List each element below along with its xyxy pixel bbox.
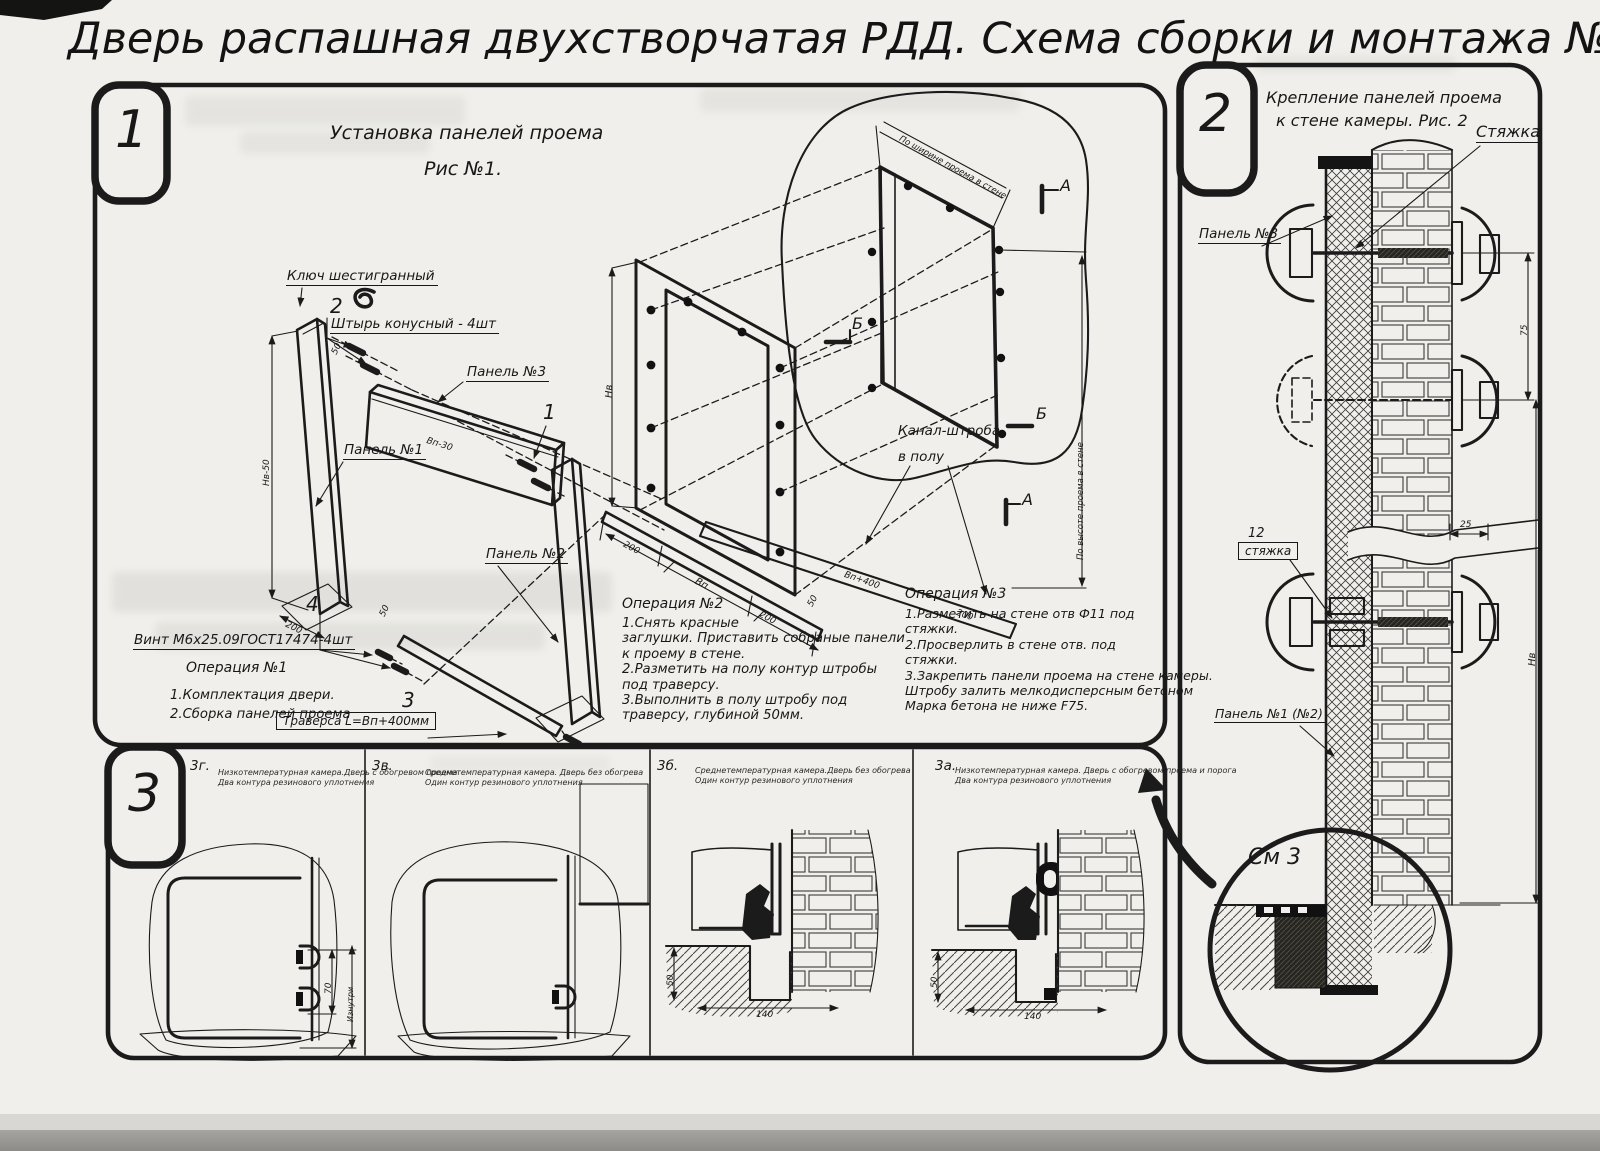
panel2-label: Панель №2 [485, 546, 568, 563]
op2-title: Операция №2 [622, 596, 723, 614]
dim-inside: Изнутри [346, 987, 356, 1022]
drawing-linework [0, 0, 1600, 1151]
detail-3v-id: 3в. [372, 758, 393, 775]
dim-hv: Нв [604, 385, 617, 398]
fig1-heading: Установка панелей проема [330, 122, 603, 146]
op1-body: 1.Комплектация двери. 2.Сборка панелей п… [170, 686, 351, 724]
fig2-heading: Крепление панелей проема [1266, 88, 1502, 108]
dim-hv-fig2: Нв [1527, 653, 1540, 666]
dim-25: 25 [1460, 520, 1471, 531]
detail-3b-id: 3б. [657, 758, 678, 775]
op2-body: 1.Снять красные заглушки. Приставить соб… [622, 616, 905, 724]
op3-title: Операция №3 [905, 586, 1006, 604]
panel1-label: Панель №1 [343, 442, 426, 459]
fig1-subheading: Рис №1. [424, 158, 502, 182]
detail-3a-note: Низкотемпературная камера. Дверь с обогр… [955, 766, 1237, 786]
tie-label: Стяжка [1476, 122, 1540, 143]
callout-3: 3 [402, 688, 415, 713]
marker-a-bottom: А [1022, 490, 1033, 510]
callout-12: 12 [1248, 526, 1265, 543]
fig2-subheading: к стене камеры. Рис. 2 [1276, 111, 1468, 131]
fig3-detail-3v [391, 784, 648, 1060]
dim-50-3a: 50 [930, 977, 941, 988]
section3-tag: 3 [128, 762, 161, 827]
tie12-label: стяжка [1238, 544, 1298, 559]
pin-label: Штырь конусный - 4шт [330, 316, 499, 333]
marker-b-right: Б [1036, 404, 1047, 424]
see-detail3-label: См 3 [1248, 844, 1301, 872]
op3-body: 1.Разметить на стене отв Ф11 под стяжки.… [905, 606, 1213, 714]
screw-label: Винт М6х25.09ГОСТ17474-4шт [133, 632, 355, 649]
detail-3v-note: Среднетемпературная камера. Дверь без об… [425, 768, 643, 788]
fig1-wall-opening [700, 92, 1088, 638]
marker-a-top: А [1060, 176, 1071, 196]
dim-70: 70 [324, 983, 335, 994]
fig3-detail-3a [932, 830, 1144, 1017]
callout-1: 1 [543, 400, 556, 425]
dim-75: 75 [1520, 325, 1531, 336]
section2-tag: 2 [1199, 82, 1232, 147]
callout-4: 4 [306, 592, 319, 617]
dim-140-3b: 140 [756, 1010, 773, 1021]
detail-3g-id: 3г. [190, 758, 210, 775]
dim-50-3b: 50 [666, 975, 677, 986]
section1-tag: 1 [115, 98, 148, 163]
marker-b-left: Б [852, 314, 863, 334]
fig3-detail-3b [666, 830, 878, 1017]
op1-title: Операция №1 [186, 660, 287, 678]
panel3-label-fig2: Панель №3 [1198, 226, 1281, 243]
photo-background-band [0, 1130, 1600, 1151]
sheet-title: Дверь распашная двухстворчатая РДД. Схем… [68, 14, 1600, 64]
detail-3a-id: 3а. [935, 758, 956, 775]
fig1-assembled-frame [600, 168, 1000, 656]
detail-3b-note: Среднетемпературная камера.Дверь без обо… [695, 766, 911, 786]
detail-3g-note: Низкотемпературная камера.Дверь с обогре… [218, 768, 457, 788]
hex-key-icon [355, 290, 374, 307]
dim-hv50: Нв-50 [262, 459, 273, 486]
fig3-detail-3g [140, 844, 356, 1060]
canal-label: Канал-штроба в полу [898, 418, 1000, 470]
scanned-assembly-drawing: Дверь распашная двухстворчатая РДД. Схем… [0, 0, 1600, 1151]
panel3-label: Панель №3 [466, 364, 549, 381]
dim-140-3a: 140 [1024, 1012, 1041, 1023]
sheet-edge-shadow [0, 1114, 1600, 1130]
hex-key-label: Ключ шестигранный [286, 268, 438, 285]
panel12-label: Панель №1 (№2) [1214, 706, 1326, 722]
dim-height-note: По высоте проема в стене [1076, 442, 1087, 560]
